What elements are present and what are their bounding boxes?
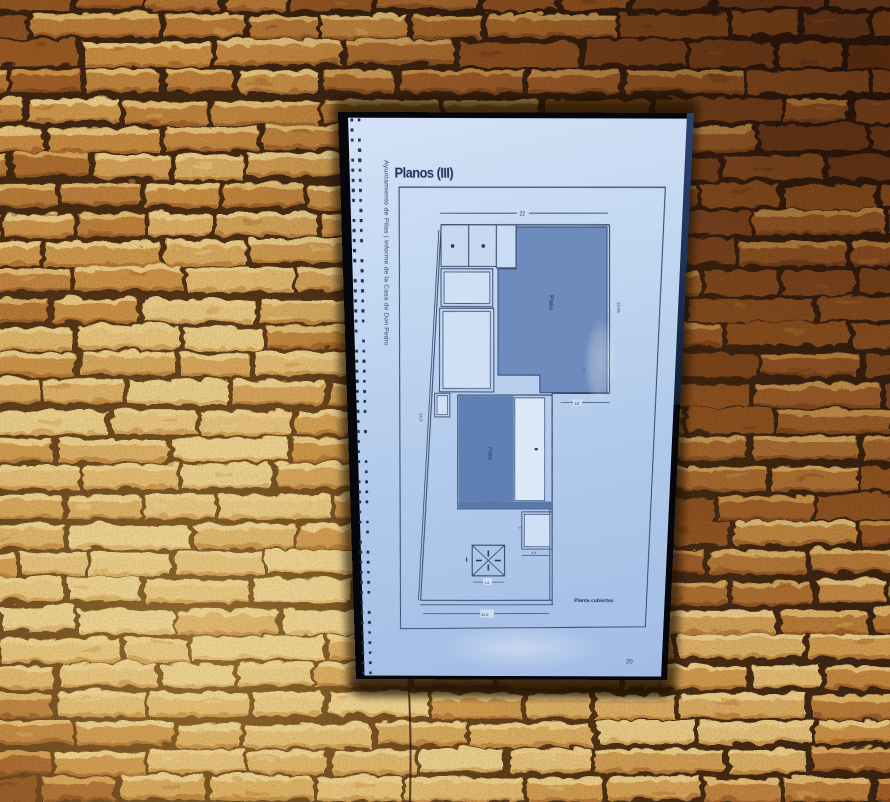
svg-text:3: 3	[518, 526, 522, 529]
svg-text:10.05: 10.05	[616, 302, 621, 313]
svg-text:10: 10	[574, 401, 579, 407]
svg-text:1.8: 1.8	[484, 581, 489, 585]
svg-text:Patio: Patio	[548, 295, 554, 310]
svg-text:Planos (III): Planos (III)	[394, 165, 454, 181]
svg-text:24.5: 24.5	[481, 613, 489, 618]
svg-text:Patio: Patio	[487, 447, 493, 460]
svg-text:4.5: 4.5	[531, 551, 537, 555]
svg-text:Planta cubiertas: Planta cubiertas	[574, 598, 614, 604]
svg-text:Ayuntamiento de Pilas | Inform: Ayuntamiento de Pilas | Informe de la Ca…	[383, 160, 389, 346]
svg-text:22: 22	[519, 211, 525, 217]
svg-text:20: 20	[626, 658, 633, 665]
svg-text:14.5: 14.5	[418, 413, 423, 422]
